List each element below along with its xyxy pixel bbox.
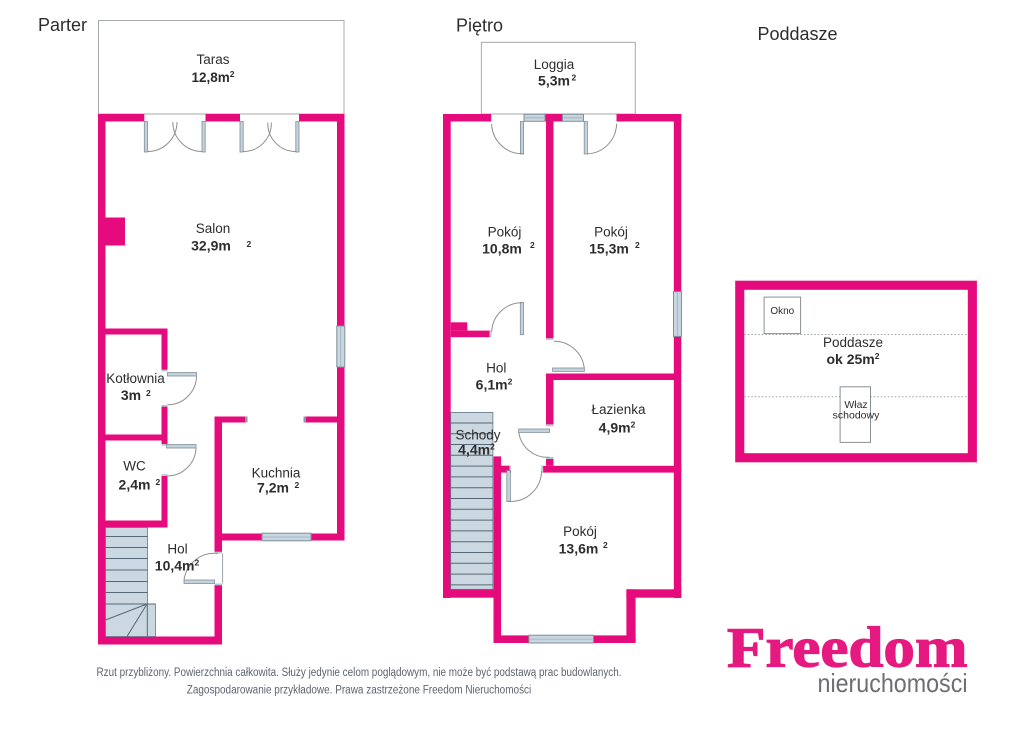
svg-text:2,4m: 2,4m [119, 477, 151, 493]
svg-text:2: 2 [530, 240, 535, 250]
svg-text:2: 2 [247, 239, 252, 249]
svg-text:schodowy: schodowy [833, 410, 880, 422]
svg-text:Piętro: Piętro [456, 16, 503, 36]
svg-text:WC: WC [123, 459, 146, 474]
svg-text:10,8m: 10,8m [482, 241, 522, 257]
svg-text:Pokój: Pokój [594, 225, 628, 240]
svg-text:Pokój: Pokój [488, 225, 522, 240]
svg-text:2: 2 [146, 388, 151, 398]
svg-text:Loggia: Loggia [534, 57, 575, 72]
svg-text:3m: 3m [121, 387, 141, 403]
svg-text:Salon: Salon [196, 221, 231, 236]
svg-text:32,9m: 32,9m [191, 238, 231, 254]
svg-text:Hol: Hol [486, 361, 506, 376]
svg-text:ok 25m2: ok 25m2 [827, 351, 880, 367]
svg-text:2: 2 [156, 477, 161, 487]
svg-text:Zagospodarowanie przykładowe.: Zagospodarowanie przykładowe. Prawa zast… [187, 684, 532, 696]
svg-text:Rzut przybliżony. Powierzchnia: Rzut przybliżony. Powierzchnia całkowita… [97, 667, 622, 679]
svg-text:Kuchnia: Kuchnia [252, 466, 301, 481]
svg-text:12,8m2: 12,8m2 [191, 69, 234, 85]
svg-text:nieruchomości: nieruchomości [818, 668, 968, 698]
svg-text:2: 2 [295, 480, 300, 490]
svg-text:Schody: Schody [455, 428, 500, 443]
svg-text:4,9m2: 4,9m2 [599, 420, 636, 436]
svg-text:Parter: Parter [38, 15, 87, 35]
svg-text:Pokój: Pokój [563, 524, 597, 539]
svg-text:5,3m: 5,3m [538, 73, 570, 89]
svg-text:Łazienka: Łazienka [591, 402, 646, 417]
svg-text:2: 2 [635, 240, 640, 250]
svg-text:Okno: Okno [770, 306, 794, 317]
svg-text:Poddasze: Poddasze [823, 335, 883, 350]
svg-text:15,3m: 15,3m [589, 241, 629, 257]
svg-text:Hol: Hol [167, 542, 187, 557]
svg-text:Poddasze: Poddasze [758, 24, 838, 44]
svg-text:10,4m2: 10,4m2 [155, 558, 200, 574]
svg-text:7,2m: 7,2m [257, 480, 289, 496]
svg-text:2: 2 [603, 540, 608, 550]
svg-text:6,1m2: 6,1m2 [476, 377, 513, 393]
svg-text:13,6m: 13,6m [559, 541, 599, 557]
svg-text:4,4m2: 4,4m2 [458, 442, 495, 458]
svg-text:2: 2 [572, 73, 577, 83]
svg-text:Taras: Taras [196, 52, 229, 67]
svg-text:Kotłownia: Kotłownia [106, 371, 165, 386]
